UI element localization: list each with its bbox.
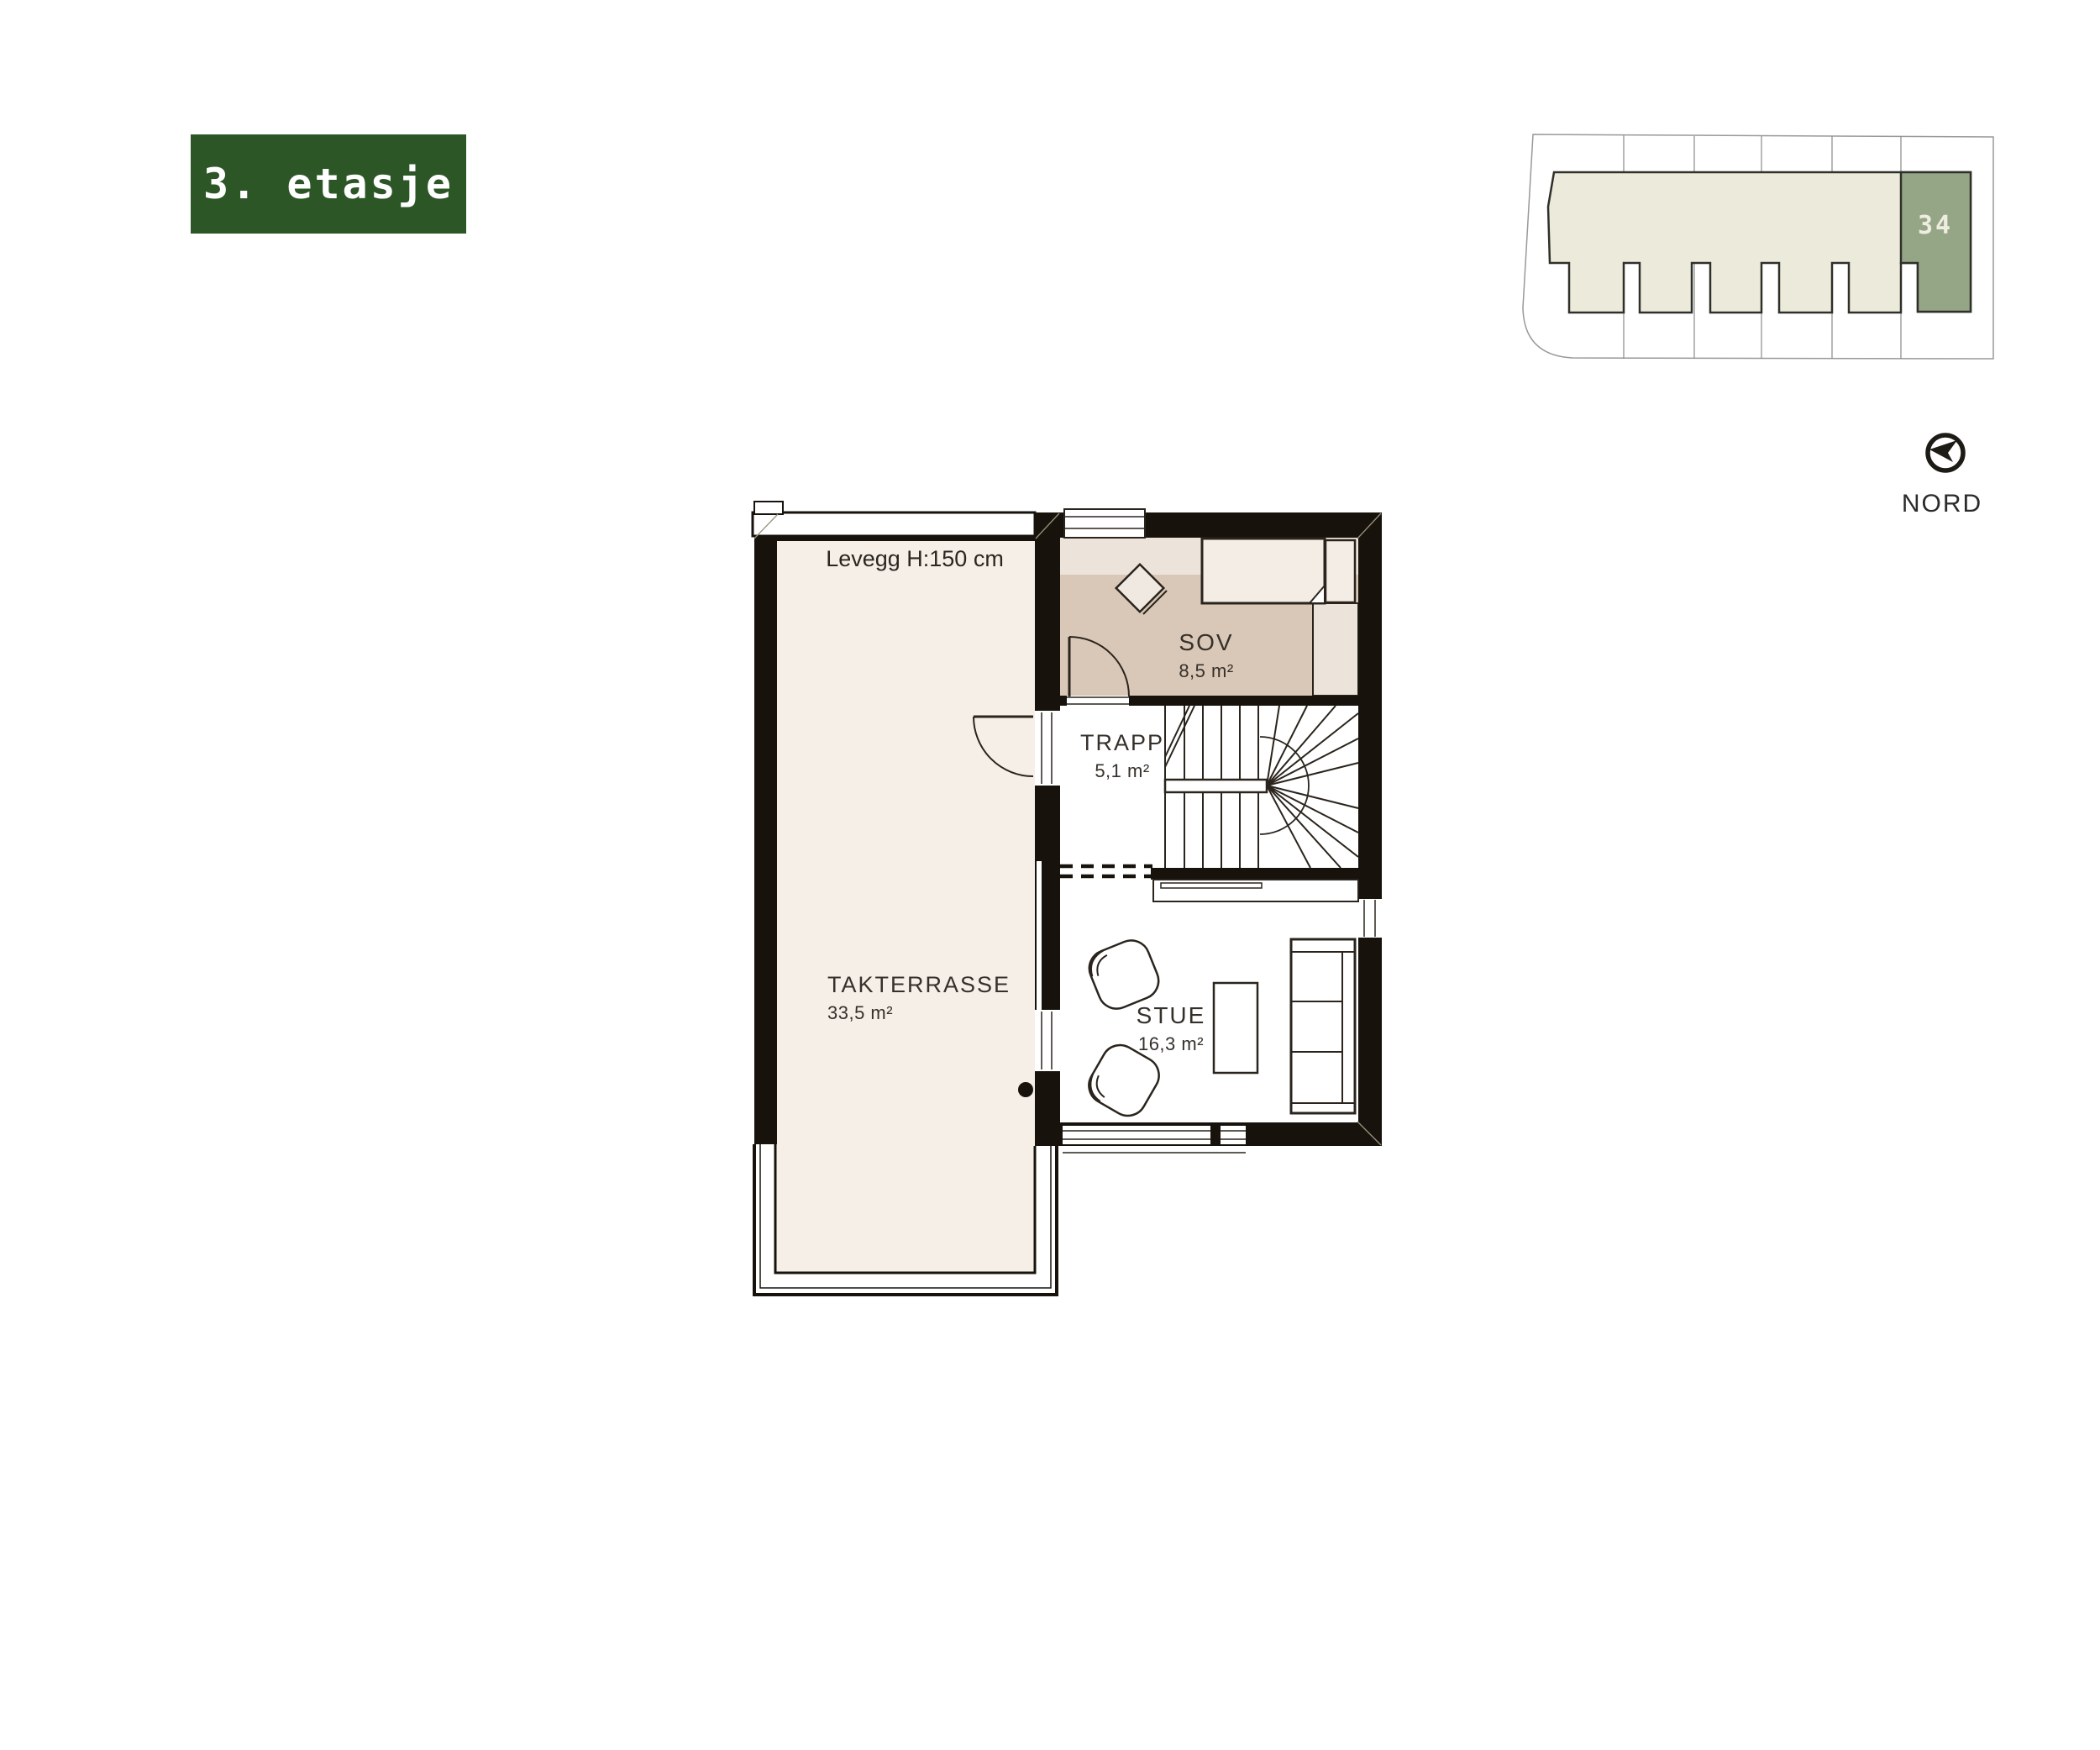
room-area: 8,5 m² bbox=[1179, 661, 1233, 681]
window-terrace-wall bbox=[1035, 1010, 1060, 1071]
room-area: 33,5 m² bbox=[827, 1003, 1011, 1023]
compass-label: NORD bbox=[1902, 490, 1982, 518]
wall-terrace-left bbox=[754, 514, 777, 1144]
site-plan: 34 bbox=[1504, 118, 2008, 386]
levegg-end-cap bbox=[754, 502, 783, 514]
window-stue-right bbox=[1358, 899, 1382, 938]
room-label-stue: STUE 16,3 m² bbox=[1137, 1003, 1206, 1054]
opening-bedroom-door bbox=[1067, 696, 1129, 706]
wall-stair-stue-divider bbox=[1151, 868, 1382, 880]
bed bbox=[1202, 539, 1325, 603]
floor-badge-label: 3. etasje bbox=[203, 160, 454, 208]
levegg-annotation: Levegg H:150 cm bbox=[826, 546, 1004, 572]
sofa bbox=[1291, 939, 1355, 1113]
levegg-screen bbox=[753, 512, 1035, 536]
window-top-wall bbox=[1064, 509, 1145, 538]
stair-handrail bbox=[1165, 780, 1267, 792]
floor-badge: 3. etasje bbox=[191, 134, 466, 234]
wall-right bbox=[1358, 512, 1382, 1146]
terrace-door-opening bbox=[1035, 711, 1060, 786]
room-name: STUE bbox=[1137, 1003, 1206, 1029]
bedroom-wardrobe bbox=[1313, 603, 1358, 696]
sideboard bbox=[1153, 880, 1358, 901]
window-stue-bottom bbox=[1063, 1126, 1246, 1153]
room-area: 16,3 m² bbox=[1137, 1034, 1206, 1054]
terrace-wall-sidelight bbox=[1037, 861, 1042, 1010]
room-name: TAKTERRASSE bbox=[827, 973, 1011, 998]
terrace-floor bbox=[754, 514, 1035, 1273]
room-label-takterrasse: TAKTERRASSE 33,5 m² bbox=[827, 973, 1011, 1023]
room-label-trapp: TRAPP 5,1 m² bbox=[1080, 731, 1164, 781]
room-area: 5,1 m² bbox=[1080, 761, 1164, 781]
compass-icon bbox=[1915, 423, 1976, 483]
floorplan-page: { "page": { "background": "#ffffff", "wa… bbox=[0, 0, 2100, 1750]
site-unit-number: 34 bbox=[1918, 211, 1953, 240]
room-label-sov: SOV 8,5 m² bbox=[1179, 630, 1233, 681]
railing-gap bbox=[753, 1144, 776, 1274]
room-name: TRAPP bbox=[1080, 731, 1164, 756]
coffee-table bbox=[1214, 983, 1257, 1073]
north-arrow-icon bbox=[1929, 440, 1957, 462]
bed-pillow bbox=[1326, 540, 1355, 602]
room-name: SOV bbox=[1179, 630, 1233, 656]
floor-plan-drawing bbox=[722, 470, 1428, 1361]
terrace-post-dot bbox=[1018, 1082, 1033, 1097]
